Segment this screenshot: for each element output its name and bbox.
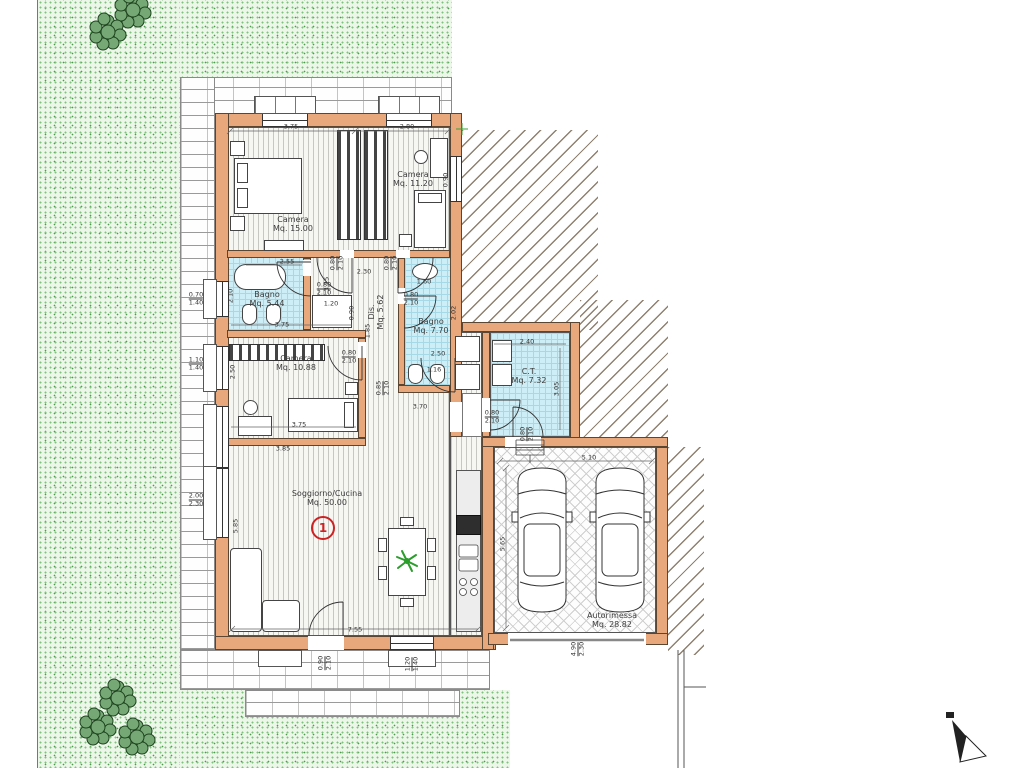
- survey-cross-icon: [456, 123, 468, 135]
- dimension-lines: [227, 128, 655, 632]
- plant-icon: [397, 551, 417, 571]
- car-icon: [590, 468, 650, 612]
- floor-plan: 1 CameraMq. 15.00CameraMq. 11.20BagnoMq.…: [0, 0, 1024, 768]
- plan-linework: [0, 0, 1024, 768]
- doors: [277, 258, 543, 636]
- north-arrow-icon: [946, 712, 986, 762]
- car-icon: [512, 468, 572, 612]
- unit-number-badge: 1: [311, 516, 335, 540]
- kitchen-fixtures: [459, 545, 478, 596]
- garage-steps: [516, 440, 544, 463]
- boundary-lines: [678, 650, 706, 768]
- bush-icon: [80, 0, 155, 755]
